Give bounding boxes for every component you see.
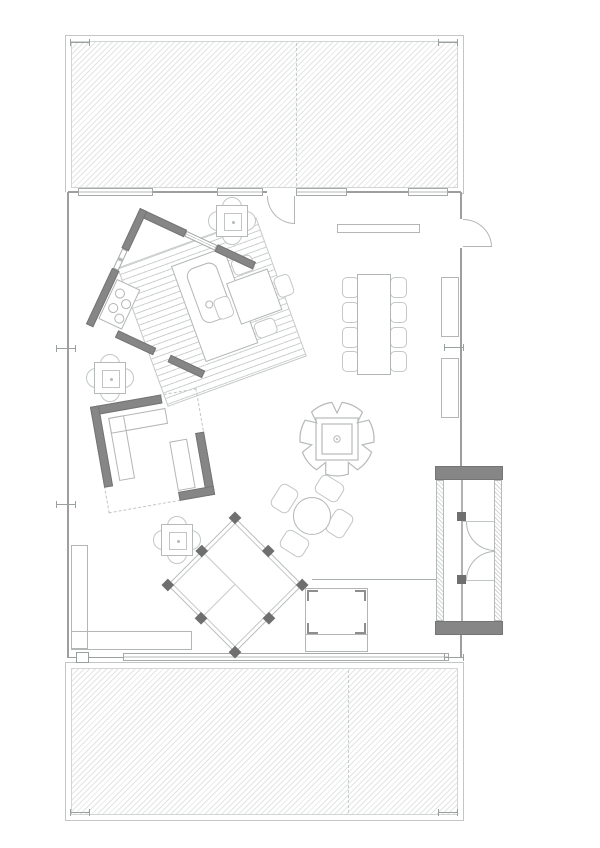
dining-set bbox=[338, 272, 412, 378]
east-door-arc bbox=[463, 219, 492, 247]
fireplace bbox=[297, 399, 377, 479]
dining-chair bbox=[390, 302, 407, 323]
vestibule-centre-wall bbox=[461, 480, 463, 621]
dining-chair bbox=[390, 277, 407, 298]
column-tick-icon bbox=[56, 501, 76, 508]
burner-icon bbox=[119, 297, 132, 310]
vestibule-frame-line bbox=[463, 580, 494, 581]
cafe-table-north bbox=[208, 197, 256, 245]
column-tick-icon bbox=[56, 345, 76, 352]
cafe-table-west bbox=[86, 354, 134, 402]
vestibule-jamb-east bbox=[494, 480, 502, 621]
lower-deck bbox=[65, 662, 464, 821]
north-window bbox=[217, 188, 263, 196]
round-table bbox=[293, 497, 331, 535]
wall-unit-upper bbox=[441, 277, 459, 337]
column-tick-icon bbox=[444, 654, 464, 661]
west-wall bbox=[67, 192, 69, 658]
burner-icon bbox=[113, 312, 126, 325]
column-tick-icon bbox=[70, 39, 90, 46]
round-table-set bbox=[264, 468, 360, 564]
north-door-leaf bbox=[294, 196, 295, 224]
sideboard bbox=[337, 224, 420, 233]
south-window-band bbox=[123, 653, 449, 661]
dining-chair bbox=[390, 351, 407, 372]
room2 bbox=[90, 388, 215, 513]
bracket-icon bbox=[355, 590, 366, 601]
column-tick-icon bbox=[70, 809, 90, 816]
east-door-leaf bbox=[463, 246, 492, 247]
lower-deck-seam bbox=[348, 670, 349, 813]
door-post-icon bbox=[457, 575, 466, 584]
table-top bbox=[216, 205, 248, 237]
door-post-icon bbox=[457, 512, 466, 521]
bracket-icon bbox=[355, 623, 366, 634]
north-window bbox=[78, 188, 153, 196]
bracket-icon bbox=[307, 590, 318, 601]
dining-table bbox=[357, 274, 391, 375]
table-top bbox=[161, 524, 193, 556]
platform-chair bbox=[253, 316, 279, 339]
column-tick-icon bbox=[438, 809, 458, 816]
upper-deck bbox=[65, 35, 464, 194]
dining-chair bbox=[390, 327, 407, 348]
desk bbox=[305, 588, 368, 652]
upper-deck-seam bbox=[296, 43, 297, 186]
desk-drawer-band bbox=[305, 634, 368, 652]
vestibule-jamb-west bbox=[436, 480, 444, 621]
l-bench-horizontal bbox=[71, 631, 192, 650]
upper-deck-hatch bbox=[71, 41, 458, 188]
column-tick-icon bbox=[438, 39, 458, 46]
fireplace-svg bbox=[297, 399, 377, 479]
vestibule-wall-north bbox=[435, 466, 503, 480]
wall-unit-lower bbox=[441, 358, 459, 418]
vestibule-wall-south bbox=[435, 621, 503, 635]
north-window bbox=[296, 188, 347, 196]
bracket-icon bbox=[307, 623, 318, 634]
column-tick-icon bbox=[444, 344, 464, 351]
floor-plan-page bbox=[0, 0, 600, 848]
north-window bbox=[408, 188, 448, 196]
south-pier bbox=[76, 652, 89, 663]
lower-deck-hatch bbox=[71, 668, 458, 815]
table-top bbox=[94, 362, 126, 394]
entry-vestibule bbox=[435, 466, 503, 636]
